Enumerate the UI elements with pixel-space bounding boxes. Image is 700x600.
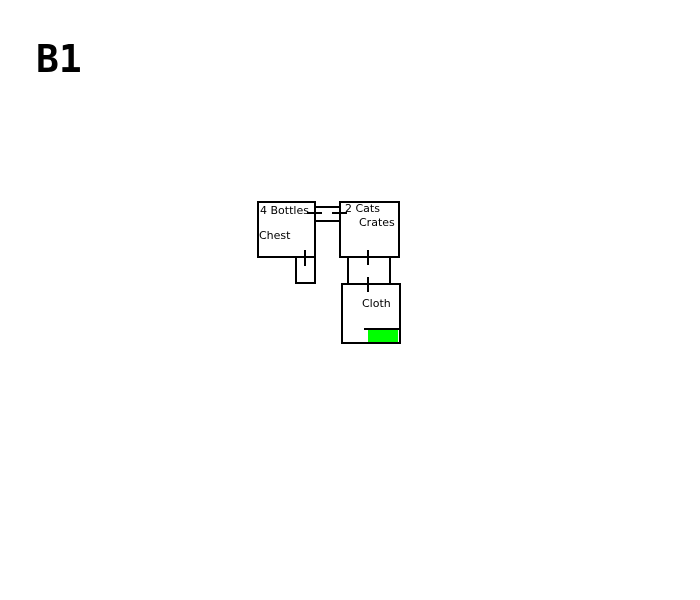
door-marker-annex (304, 250, 306, 266)
corridor-wall-top (314, 206, 341, 208)
corridor-wall-right (389, 256, 391, 285)
door-marker-cloth-north (367, 277, 369, 292)
door-marker-bottles-east (307, 212, 322, 214)
exit-highlight (368, 330, 398, 342)
room-label-cloth: Cloth (362, 297, 391, 310)
corridor-wall-left (347, 256, 349, 285)
room-label-4-bottles: 4 Bottles (260, 204, 309, 217)
room-label-crates: Crates (359, 216, 395, 229)
corridor-wall-bottom (314, 220, 341, 222)
room-label-2-cats: 2 Cats (345, 202, 380, 215)
dungeon-map: B1 4 Bottles Chest 2 Cats Crates Cloth (0, 0, 700, 600)
room-label-chest: Chest (259, 229, 290, 242)
door-marker-cats-south (367, 250, 369, 265)
floor-label: B1 (36, 40, 82, 78)
